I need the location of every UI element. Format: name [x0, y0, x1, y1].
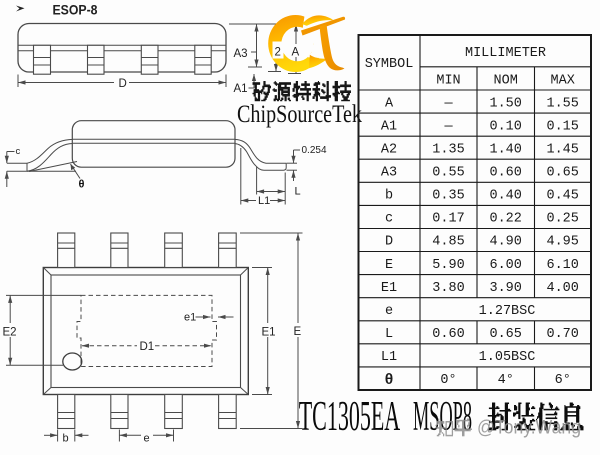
svg-text:NOM: NOM — [494, 74, 518, 89]
svg-text:0.15: 0.15 — [546, 119, 578, 134]
svg-text:0.55: 0.55 — [432, 166, 464, 181]
svg-text:5.90: 5.90 — [432, 258, 464, 273]
svg-text:4.90: 4.90 — [489, 235, 521, 250]
svg-text:e: e — [144, 433, 150, 445]
svg-text:e1: e1 — [184, 312, 196, 324]
svg-text:@Tony.Wang: @Tony.Wang — [477, 418, 581, 439]
svg-text:MILLIMETER: MILLIMETER — [465, 46, 546, 61]
svg-text:θ: θ — [384, 372, 393, 389]
svg-text:0.40: 0.40 — [489, 189, 521, 204]
svg-text:L: L — [385, 327, 393, 342]
svg-text:D: D — [119, 78, 127, 90]
svg-text:A: A — [385, 96, 394, 111]
svg-text:A: A — [292, 47, 300, 59]
svg-text:0.25: 0.25 — [546, 212, 578, 227]
svg-text:E: E — [294, 326, 302, 338]
svg-text:4°: 4° — [498, 373, 514, 388]
svg-text:2: 2 — [275, 47, 281, 59]
svg-text:3.80: 3.80 — [432, 281, 464, 296]
svg-text:0.22: 0.22 — [489, 212, 521, 227]
svg-text:θ: θ — [79, 179, 85, 191]
svg-text:1.05BSC: 1.05BSC — [479, 350, 536, 365]
svg-text:4.95: 4.95 — [546, 235, 578, 250]
svg-text:0.70: 0.70 — [546, 327, 578, 342]
svg-text:D: D — [385, 235, 393, 250]
svg-text:0.10: 0.10 — [489, 119, 521, 134]
svg-text:D1: D1 — [140, 341, 155, 353]
svg-text:ChipSourceTek: ChipSourceTek — [237, 101, 362, 128]
svg-text:c: c — [16, 146, 21, 157]
svg-text:0.17: 0.17 — [432, 212, 464, 227]
svg-text:1.27BSC: 1.27BSC — [479, 304, 536, 319]
svg-text:c: c — [385, 212, 393, 227]
svg-text:L1: L1 — [258, 195, 270, 207]
svg-text:E2: E2 — [3, 327, 17, 339]
svg-text:1.45: 1.45 — [546, 142, 578, 157]
svg-text:A1: A1 — [381, 119, 397, 134]
svg-text:6.00: 6.00 — [489, 258, 521, 273]
svg-text:1.55: 1.55 — [546, 96, 578, 111]
svg-text:4.85: 4.85 — [432, 235, 464, 250]
svg-text:b: b — [63, 433, 69, 445]
svg-text:0.45: 0.45 — [546, 189, 578, 204]
svg-text:0.60: 0.60 — [432, 327, 464, 342]
svg-text:0.254: 0.254 — [302, 145, 327, 156]
svg-text:MAX: MAX — [551, 74, 575, 89]
svg-text:0.60: 0.60 — [489, 166, 521, 181]
svg-text:1.40: 1.40 — [489, 142, 521, 157]
svg-text:0.65: 0.65 — [546, 166, 578, 181]
svg-text:L1: L1 — [381, 350, 397, 365]
svg-text:TC1305EA: TC1305EA — [299, 394, 401, 440]
svg-text:1.35: 1.35 — [432, 142, 464, 157]
svg-text:b: b — [385, 189, 393, 204]
svg-text:A3: A3 — [381, 166, 397, 181]
svg-text:SYMBOL: SYMBOL — [365, 57, 414, 72]
svg-text:A2: A2 — [381, 142, 397, 157]
svg-text:4.00: 4.00 — [546, 281, 578, 296]
svg-text:0.65: 0.65 — [489, 327, 521, 342]
svg-text:E1: E1 — [262, 327, 276, 339]
svg-text:6°: 6° — [555, 373, 571, 388]
svg-text:0°: 0° — [440, 373, 456, 388]
svg-text:0.35: 0.35 — [432, 189, 464, 204]
svg-text:—: — — [443, 119, 453, 134]
svg-text:6.10: 6.10 — [546, 258, 578, 273]
svg-text:3.90: 3.90 — [489, 281, 521, 296]
svg-text:ESOP-8: ESOP-8 — [53, 3, 98, 18]
svg-text:E: E — [385, 258, 393, 273]
svg-text:E1: E1 — [381, 281, 397, 296]
svg-text:1.50: 1.50 — [489, 96, 521, 111]
svg-text:A1: A1 — [234, 83, 248, 95]
svg-text:A3: A3 — [234, 48, 248, 60]
svg-text:—: — — [443, 96, 453, 111]
svg-text:MIN: MIN — [436, 74, 460, 89]
svg-text:L: L — [295, 186, 301, 198]
svg-text:e: e — [385, 304, 393, 319]
